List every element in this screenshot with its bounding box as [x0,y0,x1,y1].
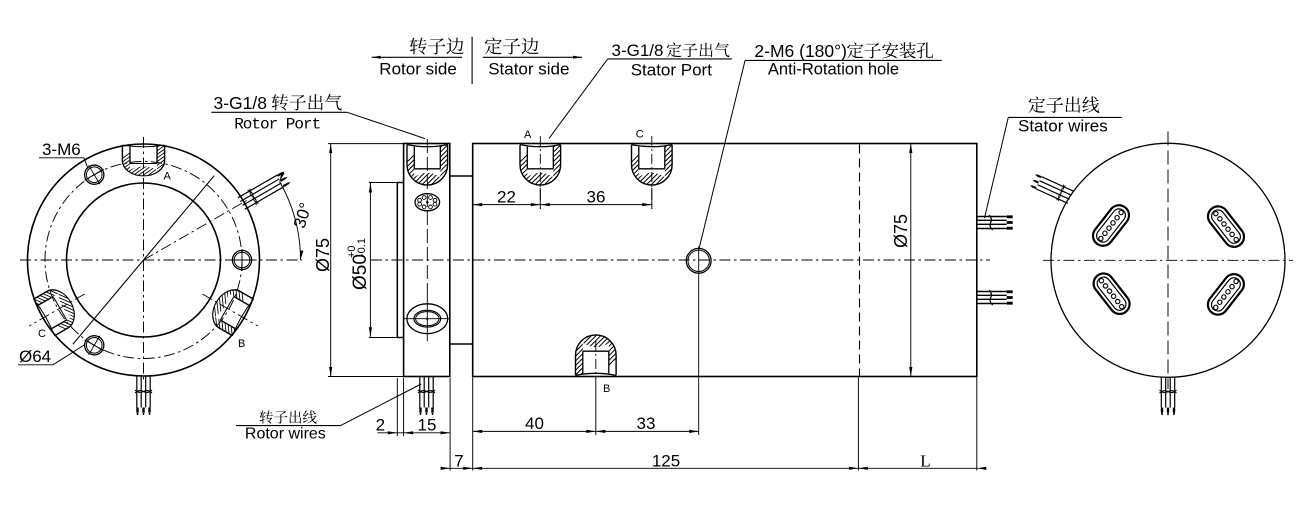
svg-text:Ø75: Ø75 [313,238,333,272]
svg-text:A: A [524,129,532,141]
svg-text:Anti-Rotation hole: Anti-Rotation hole [768,61,899,79]
svg-text:33: 33 [637,414,656,433]
svg-text:L: L [920,452,930,471]
svg-text:C: C [636,129,644,141]
svg-text:3-M6: 3-M6 [42,140,81,159]
svg-text:Ø75: Ø75 [891,214,911,248]
svg-text:15: 15 [418,416,437,435]
svg-text:2: 2 [376,416,385,435]
svg-text:Stator side: Stator side [488,60,569,79]
svg-text:Ø50: Ø50 [350,254,371,290]
svg-text:22: 22 [497,188,516,207]
svg-text:3-G1/8: 3-G1/8 [214,93,268,113]
svg-text:Rotor wires: Rotor wires [245,426,326,443]
svg-text:Ø64: Ø64 [19,347,51,366]
svg-text:Rotor side: Rotor side [379,60,456,79]
svg-text:B: B [603,383,610,395]
svg-text:7: 7 [454,452,463,471]
svg-text:40: 40 [525,414,544,433]
svg-text:36: 36 [587,188,606,207]
svg-text:A: A [164,171,172,183]
svg-text:C: C [38,328,46,340]
svg-text:3-G1/8: 3-G1/8 [612,41,664,60]
svg-text:Rotor Port: Rotor Port [234,116,320,134]
svg-text:B: B [238,338,245,350]
svg-text:-0.1: -0.1 [356,238,368,257]
svg-text:125: 125 [652,452,680,471]
svg-text:2-M6 (180°): 2-M6 (180°) [754,41,847,61]
svg-text:Stator Port: Stator Port [631,61,713,80]
svg-text:Stator wires: Stator wires [1018,117,1108,136]
